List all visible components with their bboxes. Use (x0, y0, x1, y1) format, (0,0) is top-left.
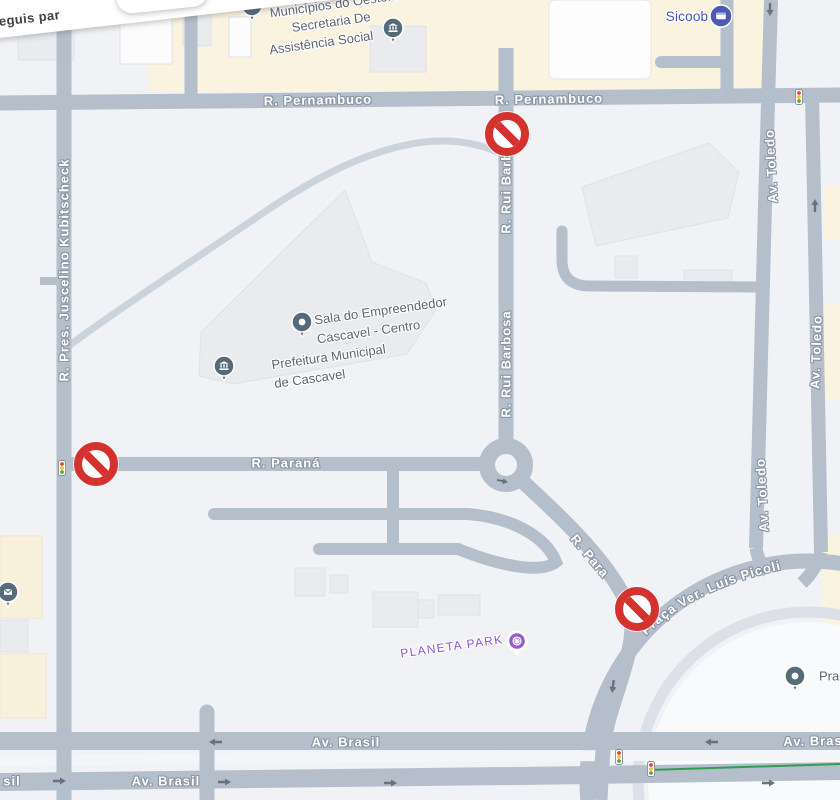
traffic-light-icon (616, 750, 623, 765)
no-entry-bar-icon (78, 446, 113, 481)
map-base-layer: Praça Ver. Luís Picoli (0, 0, 840, 800)
building (330, 575, 348, 593)
commercial-zone-right-2 (824, 303, 840, 399)
poi-label-praca[interactable]: Praça (819, 668, 840, 687)
callout-text-partial: s leguis par (0, 8, 61, 30)
street-label-pernambuco-left: R. Pernambuco (264, 93, 373, 108)
building (549, 0, 651, 79)
road-pernambuco (0, 95, 840, 103)
street-label-toledo-bottom: Av. Toledo (754, 458, 771, 533)
traffic-light-icon (796, 90, 803, 105)
building (615, 256, 637, 278)
street-label-pernambuco-right: R. Pernambuco (495, 92, 604, 107)
street-label-brasil-right: Av. Bras (783, 734, 840, 748)
street-label-parana: R. Paraná (252, 457, 321, 470)
building (438, 595, 480, 615)
no-entry-sign[interactable] (615, 587, 659, 631)
no-entry-sign[interactable] (485, 112, 529, 156)
building (373, 592, 418, 627)
no-entry-bar-icon (619, 591, 654, 626)
building (0, 620, 28, 652)
commercial-block-left-2 (0, 654, 46, 718)
traffic-light-icon (648, 762, 655, 777)
street-label-rui-barbosa: R. Rui Barbosa (500, 310, 513, 417)
street-label-brasil-lower: Av. Brasil (132, 775, 201, 788)
traffic-light-icon (59, 461, 66, 476)
street-label-juscelino: R. Pres. Juscelino Kubitscheck (58, 159, 71, 382)
street-label-toledo-top: Av. Toledo (763, 129, 780, 204)
building (418, 600, 434, 618)
no-entry-sign[interactable] (74, 442, 118, 486)
no-entry-bar-icon (489, 116, 524, 151)
commercial-block-left-1 (0, 536, 42, 618)
roundabout (487, 446, 525, 484)
street-label-brasil-upper: Av. Brasil (312, 736, 381, 749)
street-label-toledo-right: Av. Toledo (808, 315, 824, 389)
building (295, 568, 325, 596)
building (229, 17, 251, 57)
street-label-brasil-left-cut: sil (3, 775, 20, 788)
dot-pin-icon (792, 673, 799, 680)
road-median (0, 755, 840, 761)
commercial-zone-right-1 (824, 186, 840, 240)
poi-label-sicoob[interactable]: Sicoob (666, 7, 708, 27)
dot-pin-icon (299, 319, 306, 326)
road-brasil-lower (0, 771, 840, 782)
map-canvas[interactable]: Praça Ver. Luís Picoli R. Pernambuco R. … (0, 0, 840, 800)
sicoob-pin[interactable] (710, 5, 732, 27)
